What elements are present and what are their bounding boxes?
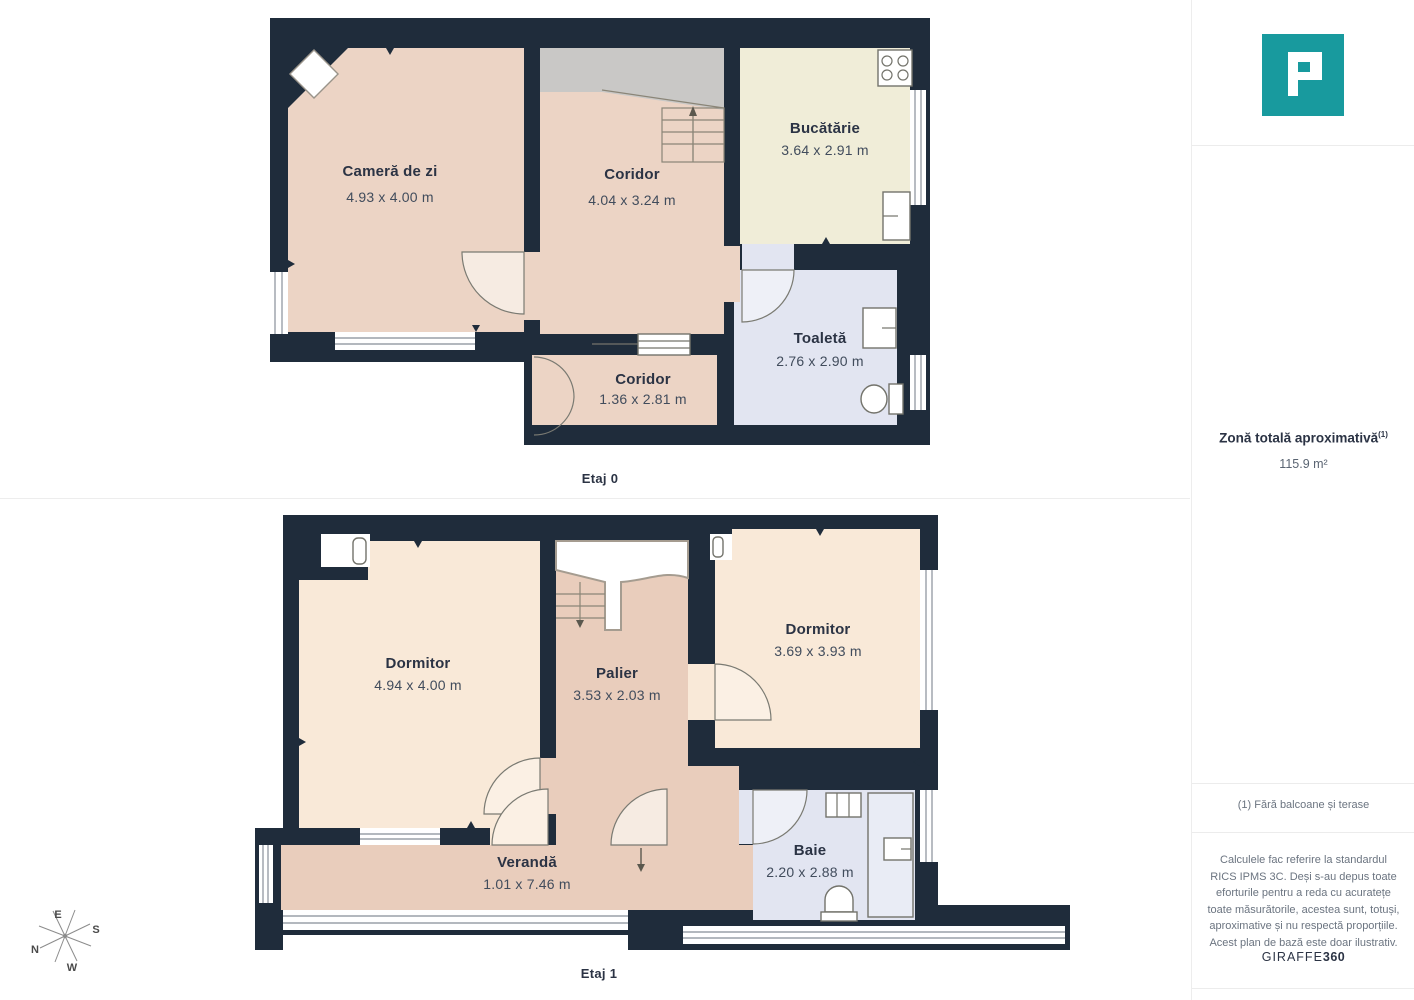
room-dims-dormitor-left: 4.94 x 4.00 m <box>374 677 461 693</box>
total-area-value: 115.9 m² <box>1192 457 1414 471</box>
brand-name: GIRAFFE <box>1262 950 1323 964</box>
window-dormr-right <box>920 570 938 710</box>
room-dims-baie: 2.20 x 2.88 m <box>766 864 853 880</box>
room-label-toaleta: Toaletă <box>794 330 847 347</box>
room-dims-camera-de-zi: 4.93 x 4.00 m <box>346 189 433 205</box>
room-label-palier: Palier <box>596 665 638 682</box>
room-label-coridor-mic: Coridor <box>615 371 671 388</box>
brand-wordmark: GIRAFFE360 <box>1192 950 1414 964</box>
niche-radiator-right <box>710 534 732 560</box>
window-living-bottom <box>335 332 475 350</box>
window-veranda-bottom <box>283 910 628 930</box>
window-right-lower <box>920 790 938 862</box>
footnote-text: (1) Fără balcoane și terase <box>1192 799 1414 811</box>
panel-divider <box>0 498 1190 499</box>
room-coridor-bottom <box>532 355 717 425</box>
floorplan-etaj1: Dormitor 4.94 x 4.00 m Palier 3.53 x 2.0… <box>253 508 1083 978</box>
sidebar-divider-3 <box>1192 832 1414 833</box>
sidebar-divider-1 <box>1192 145 1414 146</box>
floorplan-etaj1-drawing: Dormitor 4.94 x 4.00 m Palier 3.53 x 2.0… <box>253 508 1083 978</box>
toilet-icon <box>861 384 903 414</box>
total-area-title-text: Zonă totală aproximativă <box>1219 431 1378 446</box>
room-label-dormitor-left: Dormitor <box>386 655 451 672</box>
window-dorml-top-wall <box>360 828 440 845</box>
room-dims-coridor: 4.04 x 3.24 m <box>588 192 675 208</box>
compass-rose: E S N W <box>20 898 112 978</box>
caption-etaj0: Etaj 0 <box>262 471 938 486</box>
opening-palier-dormr <box>688 664 715 720</box>
room-dims-veranda: 1.01 x 7.46 m <box>483 876 570 892</box>
window-toaleta-right <box>910 355 926 410</box>
floorplan-sheet: Cameră de zi 4.93 x 4.00 m Coridor 4.04 … <box>0 0 1414 1000</box>
caption-etaj1: Etaj 1 <box>253 966 945 981</box>
window-veranda-left <box>259 845 273 903</box>
room-label-veranda: Verandă <box>497 854 557 871</box>
door-opening-kitchen-passage <box>724 246 740 302</box>
window-bottom-extension <box>683 926 1065 944</box>
compass-s: S <box>92 924 99 936</box>
shower-icon <box>868 793 913 917</box>
compass-e: E <box>54 909 61 921</box>
sidebar-divider-4 <box>1192 988 1414 989</box>
kitchen-sink-icon <box>883 192 910 240</box>
room-label-dormitor-right: Dormitor <box>786 621 851 638</box>
window-living-left <box>270 272 288 334</box>
room-dims-toaleta: 2.76 x 2.90 m <box>776 353 863 369</box>
room-label-bucatarie: Bucătărie <box>790 120 860 137</box>
sidebar-divider-2 <box>1192 783 1414 784</box>
opening-baie <box>739 790 753 844</box>
compass-w: W <box>67 962 78 974</box>
info-sidebar: Zonă totală aproximativă(1) 115.9 m² (1)… <box>1191 0 1414 1000</box>
door-opening-living <box>524 252 540 320</box>
floorplan-etaj0-drawing: Cameră de zi 4.93 x 4.00 m Coridor 4.04 … <box>262 12 938 488</box>
window-kitchen-right <box>910 90 926 205</box>
disclaimer-text: Calculele fac referire la standardul RIC… <box>1206 852 1401 951</box>
room-label-coridor: Coridor <box>604 166 660 183</box>
room-label-baie: Baie <box>794 842 827 859</box>
total-area-title: Zonă totală aproximativă(1) <box>1192 430 1414 446</box>
room-dims-dormitor-right: 3.69 x 3.93 m <box>774 643 861 659</box>
room-dims-coridor-mic: 1.36 x 2.81 m <box>599 391 686 407</box>
radiator-icon-baie <box>826 793 861 817</box>
compass-n: N <box>31 944 39 956</box>
room-dims-bucatarie: 3.64 x 2.91 m <box>781 142 868 158</box>
room-label-camera-de-zi: Cameră de zi <box>343 163 438 180</box>
door-opening-toaleta <box>742 244 794 270</box>
toaleta-sink-icon <box>863 308 896 348</box>
niche-radiator-left <box>321 534 370 567</box>
footnote-marker: (1) <box>1378 430 1388 439</box>
stove-icon <box>878 50 912 86</box>
brand-suffix: 360 <box>1323 950 1345 964</box>
floorplan-etaj0: Cameră de zi 4.93 x 4.00 m Coridor 4.04 … <box>262 12 938 488</box>
brand-logo-icon <box>1262 34 1344 116</box>
room-dims-palier: 3.53 x 2.03 m <box>573 687 660 703</box>
